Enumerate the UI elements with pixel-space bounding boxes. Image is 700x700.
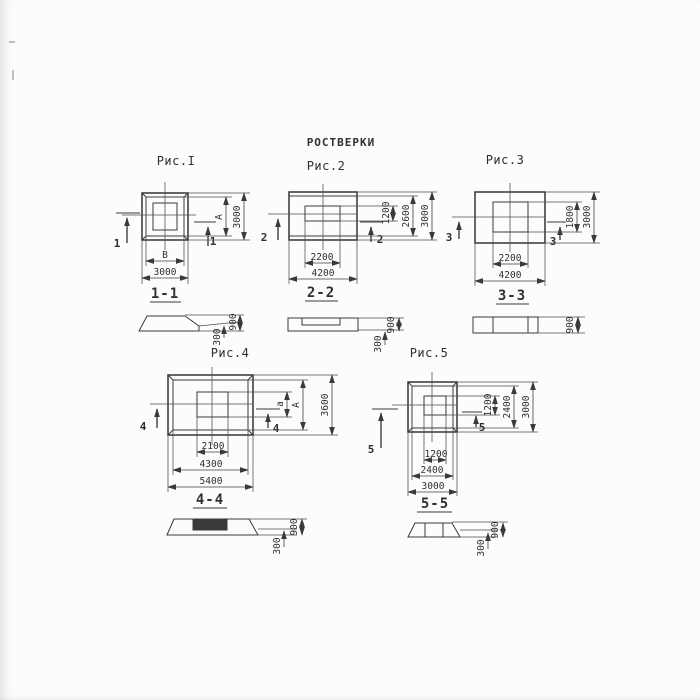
figure-2: Рис.2 2 2 1200 2600 3000 2200 4200 2-2 9…	[261, 159, 437, 353]
fig1-dim-outer-width: 3000	[154, 267, 177, 278]
fig5-plan-bevel	[412, 386, 453, 428]
fig4-cut-label-right: 4	[273, 422, 280, 435]
fig2-section-label: 2-2	[307, 285, 335, 301]
figure-3-caption: Рис.3	[486, 153, 525, 167]
fig4-bevel-corners	[168, 375, 253, 435]
fig2-dim-outer-height: 3000	[420, 204, 431, 227]
fig5-dim-outer-width: 3000	[422, 481, 445, 492]
fig3-section-label: 3-3	[498, 288, 526, 304]
fig4-centerlines	[150, 367, 253, 445]
figure-1-caption: Рис.I	[157, 154, 196, 168]
figure-5: Рис.5 5 5 1200 2400 3000 1200 2400 3000 …	[368, 346, 538, 557]
fig1-secdim-900: 900	[228, 313, 239, 330]
fig4-plan-bevel	[173, 380, 248, 430]
fig3-dim-outer-width: 4200	[499, 270, 522, 281]
fig5-secdim-900: 900	[490, 521, 501, 538]
fig3-cut-label-left: 3	[446, 231, 453, 244]
fig1-secdim-300: 300	[212, 328, 223, 345]
fig2-cut-label-right: 2	[377, 233, 384, 246]
fig1-section-profile	[139, 316, 199, 331]
fig4-plan-recess	[197, 392, 228, 417]
fig5-dim-mid-width: 2400	[421, 465, 444, 476]
fig1-dim-outer-height: 3000	[232, 205, 243, 228]
fig4-plan-outer	[168, 375, 253, 435]
fig4-section-recess	[193, 520, 227, 530]
fig2-dim-mid-height: 2600	[401, 204, 412, 227]
fig5-section-profile	[408, 523, 460, 537]
fig2-section-tail	[358, 318, 404, 330]
fig5-cut-label-left: 5	[368, 443, 375, 456]
fig1-dim-inner-height: А	[214, 214, 225, 220]
fig5-dim-inner-height: 1200	[483, 393, 494, 416]
fig5-dim-outer-height: 3000	[521, 395, 532, 418]
fig2-dim-outer-width: 4200	[312, 268, 335, 279]
fig2-secdim-900: 900	[386, 316, 397, 333]
fig5-section-joints	[425, 523, 443, 537]
scanned-drawing-page: РОСТВЕРКИ Рис.I 1 1 А 3000 В 3000 1-1	[0, 0, 700, 700]
fig3-dim-inner-width: 2200	[499, 253, 522, 264]
fig5-dim-mid-height: 2400	[502, 395, 513, 418]
fig2-secdim-300: 300	[373, 335, 384, 352]
fig5-dim-inner-width: 1200	[425, 449, 448, 460]
fig1-section-label: 1-1	[151, 286, 179, 302]
figure-2-caption: Рис.2	[307, 159, 346, 173]
sheet-title: РОСТВЕРКИ	[307, 136, 376, 149]
fig5-bevel-corners	[408, 382, 457, 432]
fig1-dim-inner-width: В	[162, 250, 168, 261]
fig3-dim-inner-height: 1800	[565, 205, 576, 228]
fig4-dim-mid-width: 4300	[200, 459, 223, 470]
fig4-secdim-300: 300	[272, 537, 283, 554]
fig3-section-joints	[493, 317, 528, 333]
fig3-secdim-900: 900	[565, 316, 576, 333]
fig4-section-label: 4-4	[196, 492, 224, 508]
scan-artifact	[9, 42, 15, 80]
fig3-cut-label-right: 3	[550, 235, 557, 248]
fig2-cut-label-left: 2	[261, 231, 268, 244]
fig5-plan-outer	[408, 382, 457, 432]
fig1-cut-label-left: 1	[114, 237, 121, 250]
fig2-dim-inner-width: 2200	[311, 252, 334, 263]
fig5-secdim-300: 300	[476, 539, 487, 556]
fig4-dim-inner-height: а	[275, 401, 286, 407]
fig5-section-label: 5-5	[421, 496, 449, 512]
fig4-cut-label-left: 4	[140, 420, 147, 433]
fig1-cut-label-right: 1	[210, 235, 217, 248]
fig5-plan-recess	[424, 396, 446, 415]
fig3-dim-outer-height: 3000	[582, 205, 593, 228]
fig2-dim-inner-height: 1200	[381, 201, 392, 224]
fig4-dim-mid-height: А	[291, 402, 302, 408]
fig3-centerlines	[452, 183, 545, 252]
fig4-secdim-900: 900	[289, 518, 300, 535]
figure-3: Рис.3 3 3 1800 3000 2200 4200 3-3 900	[446, 153, 600, 334]
figure-4: Рис.4 4 4 а А 3600 2100 4300 5400 4-4 90…	[140, 346, 338, 555]
fig4-dim-outer-height: 3600	[320, 393, 331, 416]
figure-4-caption: Рис.4	[211, 346, 250, 360]
fig4-dim-outer-width: 5400	[200, 476, 223, 487]
fig2-section-recess	[302, 318, 340, 325]
technical-drawing: РОСТВЕРКИ Рис.I 1 1 А 3000 В 3000 1-1	[0, 0, 700, 700]
figure-1: Рис.I 1 1 А 3000 В 3000 1-1 300 900	[114, 154, 250, 346]
fig2-plan-recess	[305, 206, 340, 221]
figure-5-caption: Рис.5	[410, 346, 449, 360]
fig4-dim-inner-width: 2100	[202, 441, 225, 452]
